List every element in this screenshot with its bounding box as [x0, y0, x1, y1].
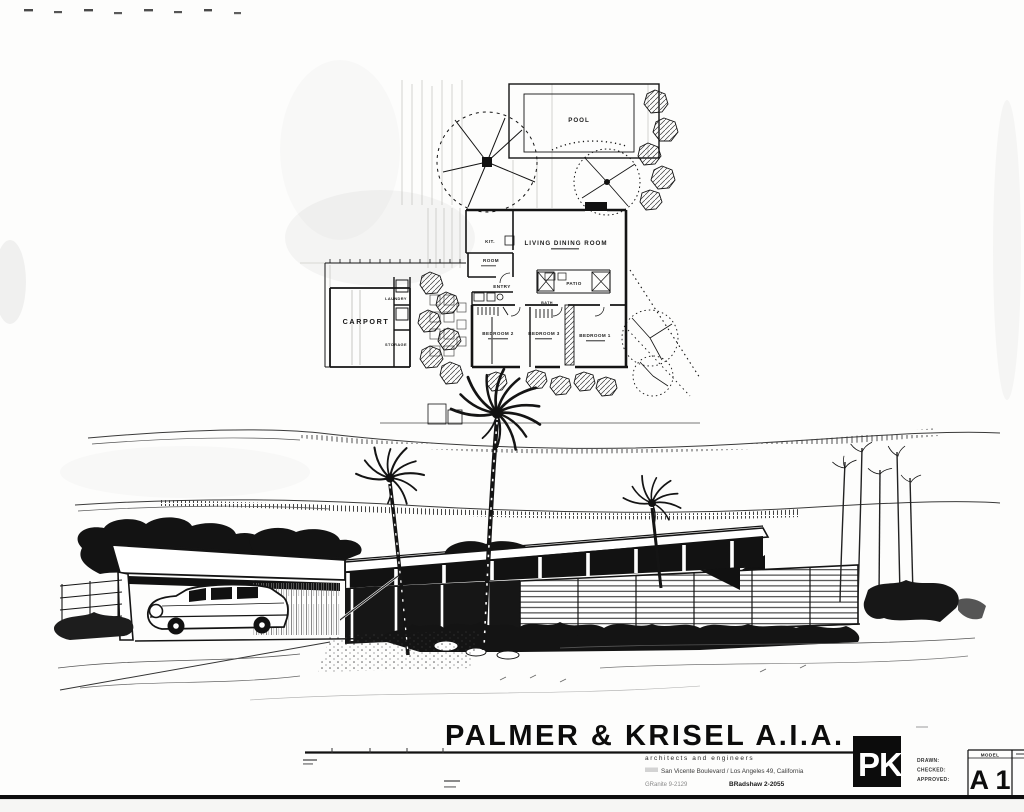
bedroom3-label: BEDROOM 3 — [528, 331, 559, 336]
firm-title: PALMER & KRISEL A.I.A. — [445, 720, 850, 752]
kitchen-label: KIT. — [485, 239, 495, 244]
plan-house-walls — [466, 202, 700, 396]
firm-address: San Vicente Boulevard / Los Angeles 49, … — [661, 768, 804, 775]
sheet-number-box: MODEL A 1 — [968, 750, 1024, 795]
title-block: PALMER & KRISEL A.I.A. PK architects and… — [0, 720, 1024, 812]
bottom-border — [0, 795, 1024, 799]
pk-logo: PK — [853, 736, 903, 787]
room-label: ROOM — [483, 258, 499, 263]
pk-logo-text: PK — [858, 746, 903, 783]
architectural-drawing: POOL — [0, 0, 1024, 812]
checked-label: CHECKED: — [917, 768, 946, 774]
carport-label: CARPORT — [343, 317, 390, 326]
living-dining-label: LIVING DINING ROOM — [525, 240, 608, 247]
hills-band-1 — [88, 404, 1000, 454]
patio-label: PATIO — [566, 281, 581, 286]
firm-phone-left: GRanite 9-2129 — [645, 782, 688, 788]
bedroom2-label: BEDROOM 2 — [482, 331, 513, 336]
firm-subtitle: architects and engineers — [645, 755, 754, 762]
plan-pool: POOL — [509, 84, 659, 158]
sheet-number: A 1 — [969, 765, 1010, 795]
entry-label: ENTRY — [493, 284, 510, 289]
perspective-rendering — [54, 369, 1000, 700]
drawn-label: DRAWN: — [917, 758, 939, 764]
pool-label: POOL — [568, 117, 590, 124]
bath-label: BATH — [541, 301, 553, 305]
approved-label: APPROVED: — [917, 777, 949, 783]
firm-phone-right: BRadshaw 2-2055 — [729, 781, 785, 788]
model-label: MODEL — [981, 753, 1000, 758]
storage-label: STORAGE — [385, 342, 407, 347]
drawing-sheet: POOL — [0, 0, 1024, 812]
laundry-label: LAUNDRY — [385, 296, 407, 301]
bedroom1-label: BEDROOM 1 — [579, 333, 610, 338]
